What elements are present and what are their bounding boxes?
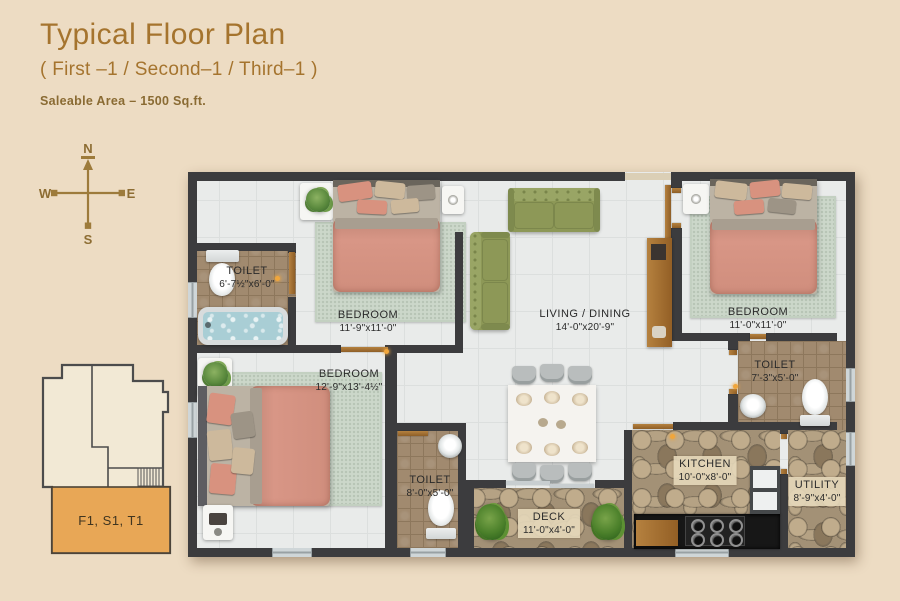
dining-chair bbox=[540, 364, 564, 382]
toilet3-left-wall bbox=[728, 341, 738, 350]
plate bbox=[516, 393, 532, 406]
pillow bbox=[374, 180, 406, 199]
pillow bbox=[230, 411, 255, 440]
fridge-door bbox=[753, 470, 777, 488]
pillow bbox=[206, 429, 233, 461]
burner-icon bbox=[710, 533, 724, 547]
wc-tank bbox=[206, 250, 239, 262]
bedroom2-label: BEDROOM 11'-0"x11'-0" bbox=[728, 305, 788, 332]
faucet-icon bbox=[205, 322, 211, 328]
compass-west-label: W bbox=[39, 186, 52, 201]
burner-icon bbox=[691, 533, 705, 547]
stove bbox=[685, 516, 745, 546]
wall-right bbox=[846, 172, 855, 557]
entrance-threshold bbox=[625, 173, 671, 180]
potted-plant-icon bbox=[203, 362, 228, 387]
washbasin bbox=[740, 394, 766, 418]
kitchen-cabinet bbox=[636, 520, 678, 546]
fridge-door bbox=[753, 492, 777, 510]
washbasin bbox=[438, 434, 462, 458]
dining-chair bbox=[568, 463, 592, 481]
bedroom3-door bbox=[341, 347, 388, 352]
bedroom3-top-wall bbox=[388, 345, 463, 353]
bedroom2-bottom-wall bbox=[682, 333, 750, 341]
window bbox=[272, 548, 312, 557]
plate bbox=[516, 441, 532, 454]
bedroom2-door-jamb bbox=[672, 188, 681, 193]
sofa-arm bbox=[481, 232, 510, 238]
headboard bbox=[198, 386, 207, 506]
bedroom2-door-jamb bbox=[672, 223, 681, 228]
deck-label: DECK 11'-0"x4'-0" bbox=[518, 509, 580, 538]
key-plan-unit-label: F1, S1, T1 bbox=[78, 513, 143, 528]
nightstand bbox=[683, 184, 709, 214]
deck-sliding-door bbox=[550, 484, 594, 488]
duvet bbox=[333, 218, 440, 292]
wall-left bbox=[188, 172, 197, 557]
sofa-arm bbox=[594, 188, 600, 232]
lamp-icon bbox=[448, 195, 458, 205]
compass-south-label: S bbox=[84, 232, 93, 247]
blanket-fold bbox=[250, 388, 262, 504]
sofa-arm bbox=[481, 324, 510, 330]
bedroom3-right-wall bbox=[385, 345, 397, 557]
pillow bbox=[734, 199, 765, 215]
north-arrow-icon bbox=[83, 159, 93, 170]
blanket-fold bbox=[335, 218, 438, 229]
pillow bbox=[767, 198, 796, 215]
sofa bbox=[470, 232, 510, 330]
entrance-door-panel bbox=[665, 185, 671, 238]
key-plan: F1, S1, T1 bbox=[30, 352, 182, 557]
deck-sliding-door bbox=[506, 481, 550, 485]
wc-bowl bbox=[802, 379, 828, 415]
bathtub bbox=[198, 307, 288, 345]
refrigerator bbox=[750, 466, 780, 514]
plate bbox=[572, 441, 588, 454]
page-title: Typical Floor Plan bbox=[40, 18, 286, 52]
window bbox=[188, 402, 197, 438]
lamp-icon bbox=[691, 194, 701, 204]
deck-top-wall bbox=[466, 480, 506, 488]
window bbox=[675, 548, 729, 557]
toilet3-door-jamb bbox=[729, 389, 737, 394]
plate bbox=[544, 391, 560, 404]
bedroom3-bed bbox=[198, 386, 330, 506]
bedroom1-living-wall bbox=[455, 232, 463, 353]
sofa-cushion bbox=[482, 239, 508, 281]
pillow bbox=[714, 180, 748, 201]
toilet3-door-jamb bbox=[729, 350, 737, 355]
dining-chair bbox=[512, 463, 536, 481]
door-handle-dot bbox=[384, 349, 389, 354]
toilet1-label: TOILET 6'-7½"x6'-0" bbox=[219, 264, 275, 291]
toilet2-top-wall bbox=[397, 423, 466, 431]
bedroom1-label: BEDROOM 11'-9"x11'-0" bbox=[338, 308, 398, 335]
kitchen-left-wall bbox=[624, 430, 632, 557]
sofa-cushion bbox=[482, 282, 508, 324]
living-dining-label: LIVING / DINING 14'-0"x20'-9" bbox=[539, 307, 630, 334]
compass-east-label: E bbox=[127, 186, 136, 201]
floor-plan: BEDROOM 11'-9"x11'-0" TOILET 6'-7½"x6'-0… bbox=[188, 172, 855, 557]
door-handle-dot bbox=[670, 434, 675, 439]
sofa-cushion bbox=[514, 202, 554, 229]
bedroom3-top-wall bbox=[196, 345, 341, 353]
utility-label: UTILITY 8'-9"x4'-0" bbox=[788, 477, 845, 506]
deck-plant-icon bbox=[592, 504, 622, 540]
console-cabinet bbox=[647, 238, 672, 347]
living-bedroom2-wall bbox=[671, 228, 682, 341]
door-handle-dot bbox=[733, 384, 738, 389]
wc-tank bbox=[800, 415, 830, 426]
dining-chair bbox=[568, 366, 592, 384]
pillow bbox=[231, 447, 256, 475]
pillow bbox=[781, 183, 812, 201]
living-bedroom2-wall bbox=[671, 181, 682, 188]
burner-icon bbox=[729, 519, 743, 533]
bedroom2-bottom-wall bbox=[766, 333, 837, 341]
compass-arms bbox=[51, 156, 125, 229]
toilet1-door bbox=[289, 252, 295, 294]
compass-north-label: N bbox=[83, 141, 92, 156]
dining-chair bbox=[512, 366, 536, 384]
center-dish bbox=[556, 420, 566, 429]
deck-plant-icon bbox=[476, 504, 506, 540]
burner-icon bbox=[691, 519, 705, 533]
nightstand bbox=[203, 505, 233, 540]
toilet3-door-sill bbox=[750, 334, 766, 339]
duvet bbox=[250, 386, 330, 506]
floor-plan-page: { "header": { "title": "Typical Floor Pl… bbox=[0, 0, 900, 601]
toilet3-label: TOILET 7'-3"x5'-0" bbox=[751, 358, 798, 385]
potted-plant-icon bbox=[306, 188, 330, 212]
sofa-back bbox=[508, 188, 600, 201]
sofa-back bbox=[470, 232, 481, 330]
sofa bbox=[508, 188, 600, 232]
saleable-area-label: Saleable Area – 1500 Sq.ft. bbox=[40, 94, 206, 108]
plate bbox=[572, 393, 588, 406]
kitchen-label: KITCHEN 10'-0"x8'-0" bbox=[674, 456, 737, 485]
pillow bbox=[357, 199, 388, 215]
utility-door-jamb bbox=[781, 434, 787, 439]
plate bbox=[544, 443, 560, 456]
window bbox=[410, 548, 446, 557]
duvet bbox=[710, 219, 817, 294]
wc-tank bbox=[426, 528, 456, 539]
radio-icon bbox=[209, 513, 227, 525]
bedroom3-label: BEDROOM 12'-9"x13'-4½" bbox=[315, 367, 382, 394]
door-handle-dot bbox=[275, 276, 280, 281]
compass-rose: N E S W bbox=[38, 140, 138, 248]
dining-table bbox=[508, 385, 596, 462]
sofa-cushion bbox=[554, 202, 594, 229]
window bbox=[846, 432, 855, 466]
toilet3-wc bbox=[798, 377, 832, 427]
toilet2-door bbox=[398, 431, 428, 436]
blanket-fold bbox=[712, 219, 815, 230]
window bbox=[846, 368, 855, 402]
pillow bbox=[749, 179, 781, 198]
toilet2-label: TOILET 8'-0"x5'-0" bbox=[406, 473, 453, 500]
bedroom2-bed bbox=[710, 179, 817, 294]
decor-item bbox=[652, 326, 666, 338]
cup-icon bbox=[214, 528, 222, 536]
page-subtitle: ( First –1 / Second–1 / Third–1 ) bbox=[40, 59, 318, 81]
burner-icon bbox=[710, 519, 724, 533]
decor-books bbox=[651, 244, 666, 260]
deck-left-wall bbox=[466, 488, 474, 557]
center-dish bbox=[538, 418, 548, 427]
utility-left-wall bbox=[780, 474, 788, 557]
bedroom1-bed bbox=[333, 180, 440, 292]
utility-door-jamb bbox=[781, 469, 787, 474]
window bbox=[188, 282, 197, 318]
pillow bbox=[390, 198, 419, 214]
kitchen-door bbox=[633, 424, 673, 429]
nightstand bbox=[442, 186, 464, 214]
burner-icon bbox=[729, 533, 743, 547]
